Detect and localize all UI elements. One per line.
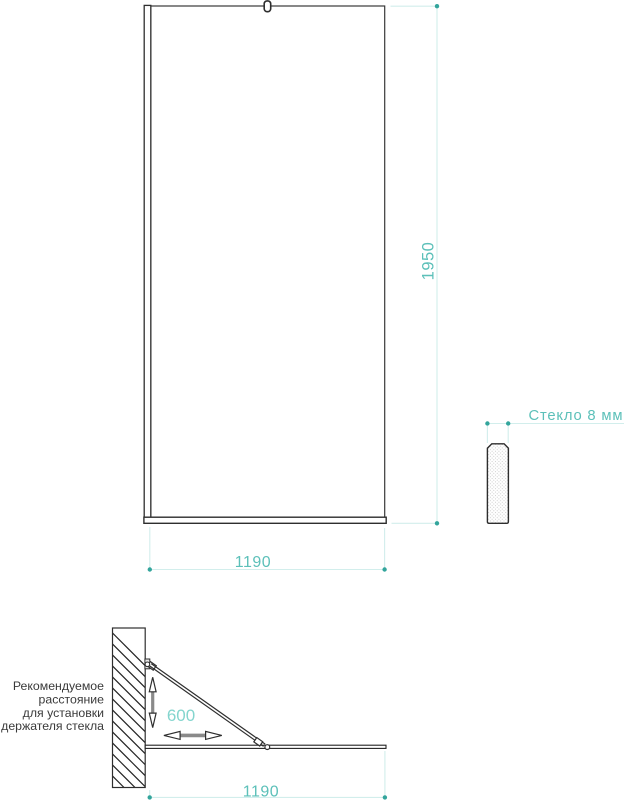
svg-text:1190: 1190 (235, 554, 271, 571)
svg-text:держателя стекла: держателя стекла (1, 719, 104, 733)
svg-text:600: 600 (167, 706, 195, 725)
svg-text:Стекло 8 мм: Стекло 8 мм (529, 408, 624, 424)
svg-text:расстояние: расстояние (39, 692, 105, 706)
svg-text:Рекомендуемое: Рекомендуемое (13, 679, 104, 693)
svg-text:для установки: для установки (23, 706, 104, 720)
svg-text:1950: 1950 (419, 242, 437, 281)
svg-text:1190: 1190 (243, 784, 279, 800)
